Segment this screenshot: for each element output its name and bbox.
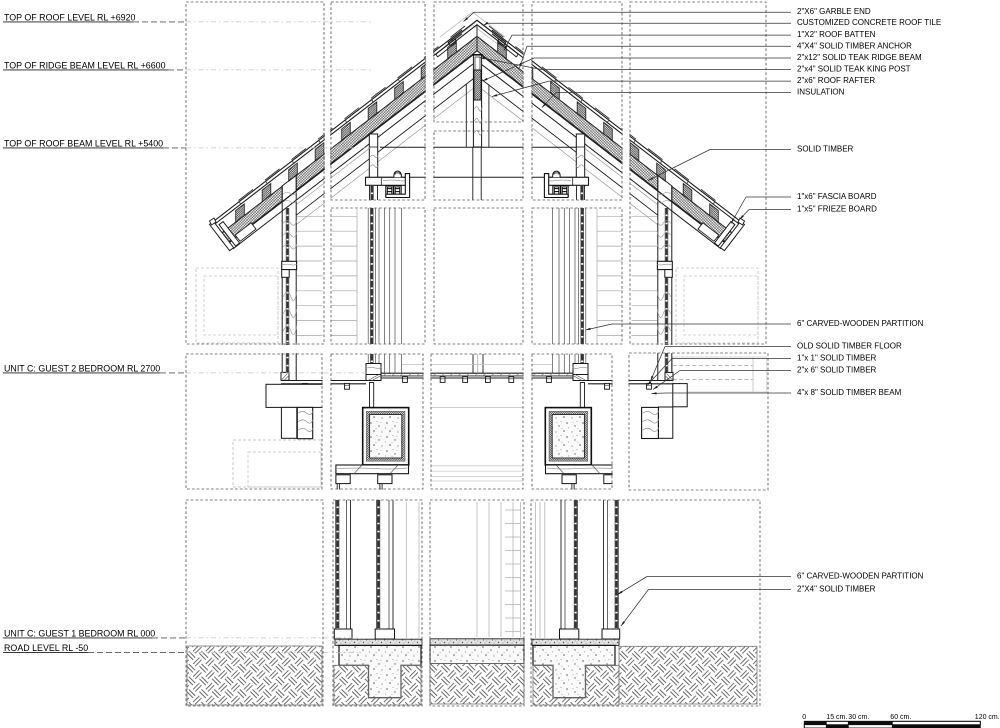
svg-text:1"x 1" SOLID TIMBER: 1"x 1" SOLID TIMBER (797, 354, 877, 363)
svg-text:60 cm.: 60 cm. (890, 714, 911, 721)
svg-text:UNIT C: GUEST 2 BEDROOM RL 270: UNIT C: GUEST 2 BEDROOM RL 2700 (4, 363, 160, 373)
svg-text:INSULATION: INSULATION (797, 88, 845, 97)
svg-text:2"x12" SOLID TEAK RIDGE BEAM: 2"x12" SOLID TEAK RIDGE BEAM (797, 53, 922, 62)
svg-text:CUSTOMIZED CONCRETE ROOF TILE: CUSTOMIZED CONCRETE ROOF TILE (797, 18, 941, 27)
svg-text:1"x6" FASCIA BOARD: 1"x6" FASCIA BOARD (797, 192, 877, 201)
svg-text:TOP OF RIDGE BEAM LEVEL RL +66: TOP OF RIDGE BEAM LEVEL RL +6600 (4, 60, 166, 70)
svg-text:6" CARVED-WOODEN PARTITION: 6" CARVED-WOODEN PARTITION (797, 572, 924, 581)
svg-text:TOP OF ROOF BEAM LEVEL RL +540: TOP OF ROOF BEAM LEVEL RL +5400 (4, 138, 163, 148)
svg-text:2"X4" SOLID TIMBER: 2"X4" SOLID TIMBER (797, 585, 876, 594)
svg-text:0: 0 (802, 714, 806, 721)
svg-text:2"x4" SOLID TEAK KING POST: 2"x4" SOLID TEAK KING POST (797, 64, 911, 73)
svg-text:120 cm.: 120 cm. (975, 714, 1000, 721)
svg-text:2"x6" ROOF RAFTER: 2"x6" ROOF RAFTER (797, 76, 875, 85)
svg-text:UNIT C: GUEST 1 BEDROOM RL 000: UNIT C: GUEST 1 BEDROOM RL 000 (4, 628, 155, 638)
svg-text:4"X4" SOLID TIMBER ANCHOR: 4"X4" SOLID TIMBER ANCHOR (797, 41, 912, 50)
svg-text:2"X6" GARBLE END: 2"X6" GARBLE END (797, 7, 871, 16)
svg-text:6" CARVED-WOODEN PARTITION: 6" CARVED-WOODEN PARTITION (797, 319, 924, 328)
svg-text:SOLID TIMBER: SOLID TIMBER (797, 145, 854, 154)
svg-text:TOP OF ROOF LEVEL RL +6920: TOP OF ROOF LEVEL RL +6920 (4, 12, 136, 22)
svg-text:4"x 8" SOLID TIMBER BEAM: 4"x 8" SOLID TIMBER BEAM (797, 388, 902, 397)
svg-text:2"x 6" SOLID TIMBER: 2"x 6" SOLID TIMBER (797, 366, 877, 375)
svg-text:OLD SOLID TIMBER FLOOR: OLD SOLID TIMBER FLOOR (797, 342, 902, 351)
svg-text:ROAD LEVEL RL -50: ROAD LEVEL RL -50 (4, 643, 88, 653)
svg-text:15 cm.: 15 cm. (826, 714, 847, 721)
svg-text:1"x5" FRIEZE BOARD: 1"x5" FRIEZE BOARD (797, 205, 877, 214)
svg-text:1"X2" ROOF BATTEN: 1"X2" ROOF BATTEN (797, 30, 876, 39)
svg-text:30 cm.: 30 cm. (848, 714, 869, 721)
